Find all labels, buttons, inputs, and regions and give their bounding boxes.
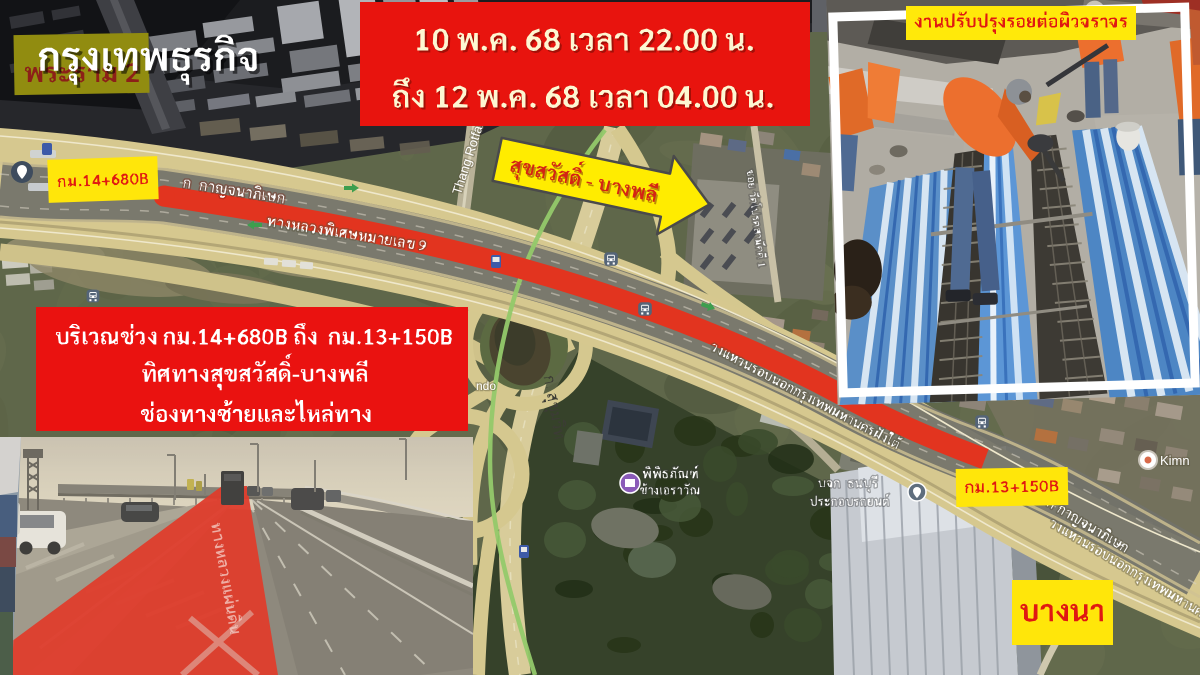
svg-text:Kimn: Kimn (1160, 453, 1190, 468)
svg-text:ndo: ndo (476, 379, 496, 393)
